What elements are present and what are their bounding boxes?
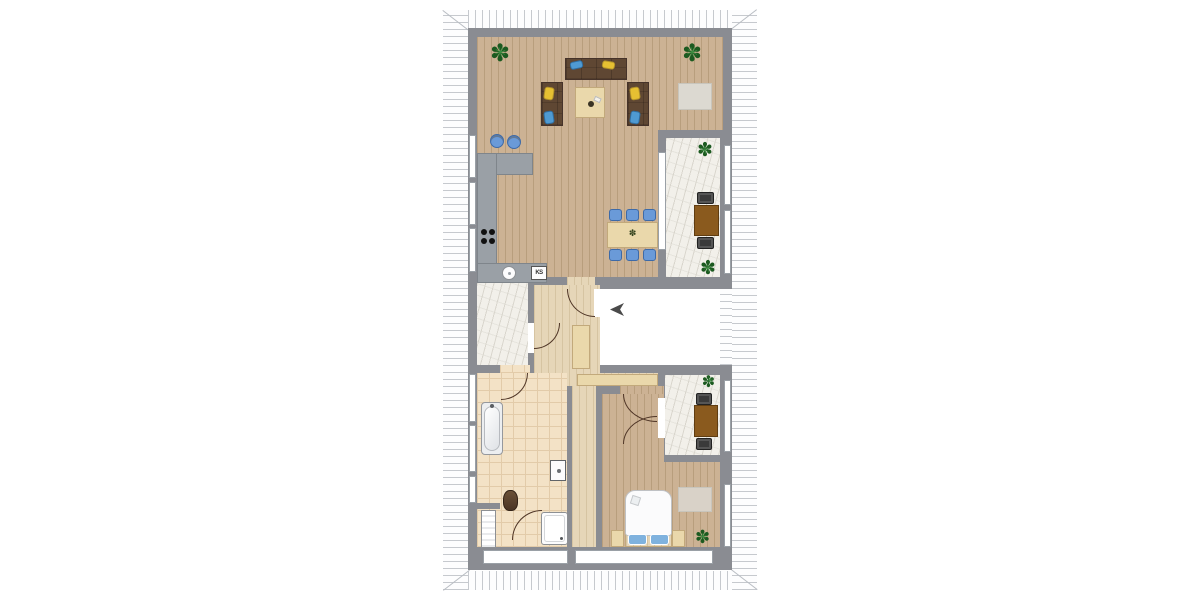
dining-chair-bottom-3 [643, 249, 656, 261]
roof-band-right [732, 10, 757, 590]
floor-plan: ✽✳ ✽✳ KS ✽ ✽✳ ✽✳ [443, 10, 757, 590]
stairwell-floor [600, 289, 720, 365]
dining-chair-top-2 [626, 209, 639, 221]
window-balcony-bedroom [724, 380, 731, 452]
plant-balcony-upper-top: ✽✳ [695, 140, 715, 160]
dining-centerpiece: ✽ [628, 230, 637, 239]
loveseat-left-pillow-yellow [543, 86, 555, 100]
hall-wardrobe-vertical [572, 325, 590, 369]
window-bottom-2 [575, 550, 713, 564]
bathroom-stub-wall [477, 503, 500, 509]
door-opening-bedroom [620, 386, 664, 394]
balcony-bedroom-chair-top [696, 393, 712, 405]
plant-living-left: ✽✳ [488, 41, 512, 65]
bed [625, 490, 672, 547]
nightstand-left [611, 530, 624, 547]
dining-chair-top-1 [609, 209, 622, 221]
balcony-bedroom-table [694, 405, 718, 437]
fridge-label: KS [535, 270, 542, 276]
corridor-floor [572, 386, 596, 547]
dining-chair-bottom-1 [609, 249, 622, 261]
balcony-bedroom-chair-bottom [696, 438, 712, 450]
balcony-left-floor [477, 283, 528, 365]
loveseat-right-pillow-yellow [629, 86, 641, 100]
shower [541, 512, 568, 545]
nightstand-right [672, 530, 685, 547]
coffee-table [575, 87, 605, 118]
dining-chair-bottom-2 [626, 249, 639, 261]
window-bathroom-1 [469, 374, 476, 422]
door-opening-living-hall [567, 277, 595, 285]
plant-balcony-bedroom: ✽✳ [700, 373, 717, 390]
window-bathroom-3 [469, 476, 476, 503]
balcony-upper-chair-top [697, 192, 714, 204]
loveseat-right-pillow-blue [629, 110, 641, 124]
window-balcony-upper-inner [658, 152, 666, 250]
roof-band-bottom [468, 571, 732, 590]
door-opening-bathroom [500, 365, 530, 373]
window-kitchen-2 [469, 182, 476, 225]
living-rug [678, 83, 712, 110]
balcony-upper-table [694, 205, 719, 236]
window-kitchen-1 [469, 135, 476, 178]
dining-chair-top-3 [643, 209, 656, 221]
bedroom-rug [678, 487, 712, 512]
bathtub [481, 402, 503, 455]
bed-pillow-left [628, 534, 647, 545]
bar-stool-2 [507, 135, 521, 149]
roof-band-top [468, 10, 732, 29]
bathroom-radiator [481, 510, 496, 548]
window-balcony-upper-1 [724, 145, 731, 205]
balcony-upper-chair-bottom [697, 237, 714, 249]
bar-stool-1 [490, 134, 504, 148]
stairwell-roof-gap [720, 289, 732, 365]
stove [480, 227, 496, 247]
kitchen-sink [502, 266, 516, 280]
roof-band-left [443, 10, 468, 590]
bed-pillow-right [650, 534, 669, 545]
fridge: KS [531, 266, 547, 280]
plant-balcony-upper-bottom: ✽✳ [698, 258, 718, 278]
hall-wardrobe-horizontal [577, 374, 658, 386]
window-balcony-upper-2 [724, 210, 731, 274]
plant-living-right: ✽✳ [680, 41, 704, 65]
window-bottom-1 [483, 550, 568, 564]
door-opening-balcony-bedroom [658, 398, 665, 438]
plant-bedroom: ✽✳ [693, 528, 712, 547]
washbasin [550, 460, 566, 481]
window-bathroom-2 [469, 425, 476, 472]
window-bedroom [724, 484, 731, 547]
window-kitchen-3 [469, 228, 476, 272]
loveseat-left-pillow-blue [543, 110, 555, 124]
toilet [503, 490, 518, 511]
